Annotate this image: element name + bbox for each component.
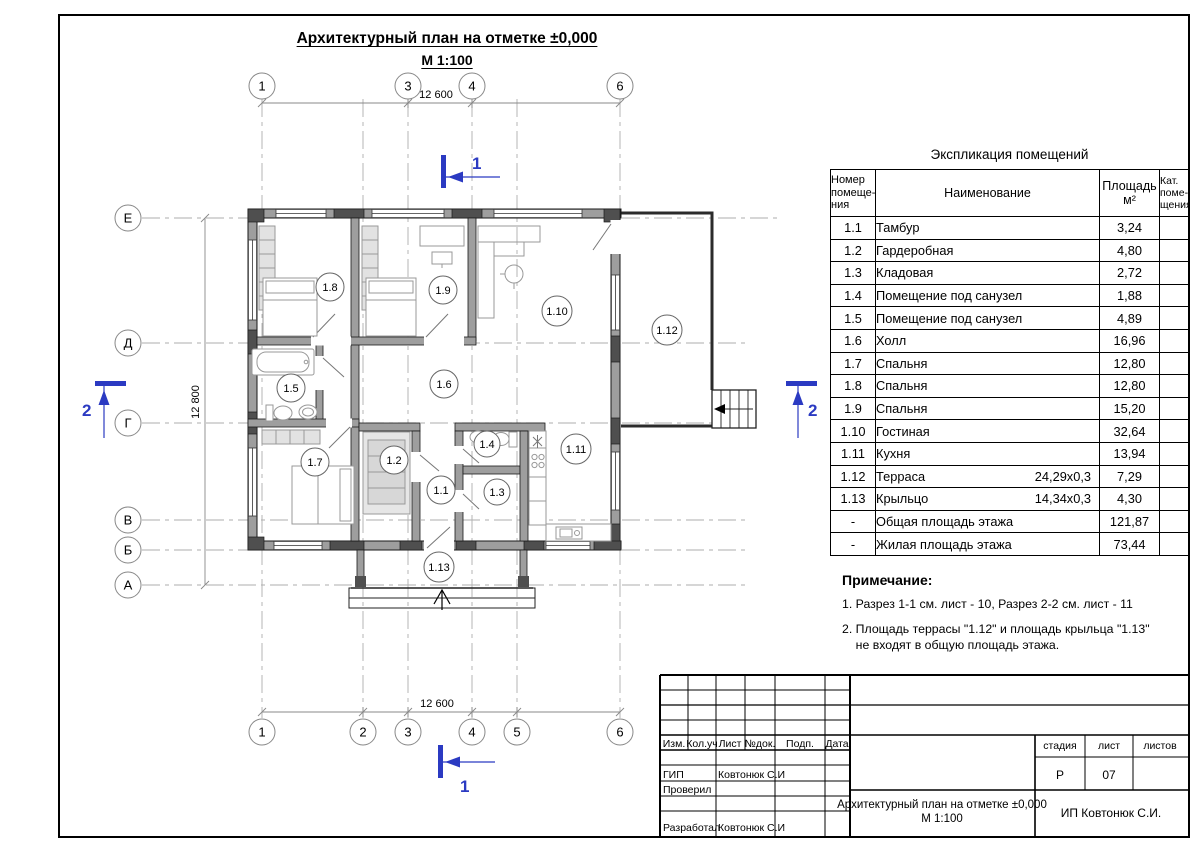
sink-icon bbox=[299, 405, 317, 419]
axis-grid-lines bbox=[142, 99, 780, 718]
room-label: 1.1 bbox=[433, 485, 448, 497]
room-label: 1.12 bbox=[656, 325, 677, 337]
room-name: Спальня bbox=[876, 401, 927, 416]
axis-bubble-bottom: 6 bbox=[607, 719, 633, 745]
room-number-cell: 1.6 bbox=[831, 329, 876, 352]
room-label: 1.5 bbox=[283, 383, 298, 395]
room-number-cell: 1.7 bbox=[831, 352, 876, 375]
stamp-company: ИП Ковтонюк С.И. bbox=[1061, 806, 1162, 820]
axis-bubble-left: Б bbox=[115, 537, 141, 563]
table-row: 1.8 Спальня 12,80 bbox=[831, 375, 1190, 398]
axis-bubble-bottom: 3 bbox=[395, 719, 421, 745]
section-label: 1 bbox=[472, 154, 481, 173]
room-name: Спальня bbox=[876, 356, 927, 371]
room-name: Общая площадь этажа bbox=[876, 514, 1013, 529]
room-bubble-1-4: 1.4 bbox=[474, 431, 500, 457]
table-row: 1.5 Помещение под санузел 4,89 bbox=[831, 307, 1190, 330]
room-label: 1.13 bbox=[428, 562, 449, 574]
room-name-cell: Жилая площадь этажа bbox=[876, 533, 1100, 556]
axis-bubble-left: Е bbox=[115, 205, 141, 231]
room-name-cell: Гардеробная bbox=[876, 239, 1100, 262]
axis-label: Б bbox=[124, 543, 133, 558]
room-name-cell: Крыльцо14,34x0,3 bbox=[876, 488, 1100, 511]
bed-icon bbox=[366, 278, 416, 336]
bed-icon bbox=[292, 466, 354, 524]
table-row: 1.1 Тамбур 3,24 bbox=[831, 217, 1190, 240]
room-label: 1.3 bbox=[489, 487, 504, 499]
notes-block: Примечание: 1. Разрез 1-1 см. лист - 10,… bbox=[842, 572, 1182, 654]
room-category-cell bbox=[1160, 352, 1190, 375]
room-name-cell: Помещение под санузел bbox=[876, 307, 1100, 330]
col-header-name: Наименование bbox=[876, 170, 1100, 217]
bathtub-icon bbox=[252, 349, 314, 375]
room-schedule-title: Экспликация помещений bbox=[830, 147, 1189, 169]
room-area-cell: 1,88 bbox=[1100, 284, 1160, 307]
room-name: Жилая площадь этажа bbox=[876, 537, 1012, 552]
stamp-stage-label: стадия bbox=[1043, 740, 1076, 752]
room-category-cell bbox=[1160, 239, 1190, 262]
room-area-cell: 2,72 bbox=[1100, 262, 1160, 285]
room-area-cell: 7,29 bbox=[1100, 465, 1160, 488]
bed-icon bbox=[263, 278, 317, 336]
axis-label: В bbox=[124, 513, 133, 528]
stamp-name: Ковтонюк С.И bbox=[718, 769, 785, 781]
axis-label: 3 bbox=[404, 79, 411, 94]
dim-value-top: 12 600 bbox=[419, 89, 453, 101]
stamp-col-label: №док. bbox=[745, 738, 776, 750]
room-dim: 14,34x0,3 bbox=[1035, 491, 1091, 506]
room-label: 1.7 bbox=[307, 457, 322, 469]
axis-label: 2 bbox=[359, 725, 366, 740]
table-row: 1.6 Холл 16,96 bbox=[831, 329, 1190, 352]
axis-label: 4 bbox=[468, 79, 475, 94]
room-area-cell: 3,24 bbox=[1100, 217, 1160, 240]
axis-bubble-left: Г bbox=[115, 410, 141, 436]
room-area-cell: 4,80 bbox=[1100, 239, 1160, 262]
room-number-cell: 1.12 bbox=[831, 465, 876, 488]
room-bubble-1-10: 1.10 bbox=[542, 296, 572, 326]
room-label: 1.6 bbox=[436, 379, 451, 391]
table-row: 1.13 Крыльцо14,34x0,3 4,30 bbox=[831, 488, 1190, 511]
room-name: Гардеробная bbox=[876, 243, 953, 258]
room-category-cell bbox=[1160, 442, 1190, 465]
room-label: 1.8 bbox=[322, 282, 337, 294]
table-row: - Жилая площадь этажа 73,44 bbox=[831, 533, 1190, 556]
room-number-cell: 1.3 bbox=[831, 262, 876, 285]
axis-bubble-bottom: 1 bbox=[249, 719, 275, 745]
room-area-cell: 15,20 bbox=[1100, 397, 1160, 420]
room-category-cell bbox=[1160, 533, 1190, 556]
room-number-cell: 1.10 bbox=[831, 420, 876, 443]
room-name: Помещение под санузел bbox=[876, 288, 1022, 303]
room-schedule: Экспликация помещений Номер помеще- ния … bbox=[830, 147, 1189, 556]
section-label: 2 bbox=[82, 401, 91, 420]
room-name-cell: Гостиная bbox=[876, 420, 1100, 443]
room-name: Крыльцо bbox=[876, 491, 928, 506]
kitchen-sink-icon bbox=[556, 527, 582, 539]
axis-label: Е bbox=[124, 211, 133, 226]
axis-bubble-left: А bbox=[115, 572, 141, 598]
room-dim: 24,29x0,3 bbox=[1035, 469, 1091, 484]
room-area-cell: 73,44 bbox=[1100, 533, 1160, 556]
armchair-icon bbox=[500, 265, 523, 289]
stamp-col-label: Лист bbox=[719, 738, 742, 750]
room-bubble-1-12: 1.12 bbox=[652, 315, 682, 345]
room-number-cell: 1.2 bbox=[831, 239, 876, 262]
section-marker-1-bottom: 1 bbox=[438, 745, 495, 796]
room-area-cell: 12,80 bbox=[1100, 352, 1160, 375]
room-label: 1.10 bbox=[546, 306, 567, 318]
room-schedule-table: Номер помеще- ния Наименование Площадь м… bbox=[830, 169, 1190, 556]
stamp-sheet-label: лист bbox=[1098, 740, 1120, 752]
room-area-cell: 13,94 bbox=[1100, 442, 1160, 465]
room-bubble-1-3: 1.3 bbox=[484, 479, 510, 505]
terrace-stairs-icon bbox=[712, 390, 756, 428]
room-number-cell: 1.5 bbox=[831, 307, 876, 330]
notes-list: 1. Разрез 1-1 см. лист - 10, Разрез 2-2 … bbox=[842, 597, 1182, 654]
room-label: 1.11 bbox=[566, 444, 587, 456]
room-name: Гостиная bbox=[876, 424, 930, 439]
room-name-cell: Спальня bbox=[876, 397, 1100, 420]
room-bubble-1-9: 1.9 bbox=[429, 276, 457, 304]
shelves-icon bbox=[363, 432, 410, 514]
stamp-doc-title: Архитектурный план на отметке ±0,000 bbox=[837, 799, 1047, 811]
stamp-col-label: Дата bbox=[825, 738, 848, 750]
stamp-role: ГИП bbox=[663, 769, 684, 781]
notes-heading: Примечание: bbox=[842, 572, 1182, 588]
axis-label: 5 bbox=[513, 725, 520, 740]
axis-bubble-top: 6 bbox=[607, 73, 633, 99]
axis-bubble-bottom: 4 bbox=[459, 719, 485, 745]
room-name: Спальня bbox=[876, 378, 927, 393]
stamp-col-label: Изм. bbox=[663, 738, 686, 750]
table-row: 1.11 Кухня 13,94 bbox=[831, 442, 1190, 465]
room-number-cell: 1.8 bbox=[831, 375, 876, 398]
room-bubble-1-13: 1.13 bbox=[424, 552, 454, 582]
section-marker-2-right: 2 bbox=[786, 381, 817, 438]
axis-label: 1 bbox=[258, 79, 265, 94]
axis-bubble-top: 4 bbox=[459, 73, 485, 99]
room-name-cell: Кухня bbox=[876, 442, 1100, 465]
axis-label: 1 bbox=[258, 725, 265, 740]
room-area-cell: 16,96 bbox=[1100, 329, 1160, 352]
room-name-cell: Терраса24,29x0,3 bbox=[876, 465, 1100, 488]
room-category-cell bbox=[1160, 329, 1190, 352]
dim-value-left: 12 800 bbox=[190, 385, 202, 419]
axis-bubble-top: 3 bbox=[395, 73, 421, 99]
dim-value-bottom: 12 600 bbox=[420, 698, 454, 710]
stamp-sheet-value: 07 bbox=[1102, 768, 1116, 782]
room-label: 1.9 bbox=[435, 285, 450, 297]
room-number-cell: 1.1 bbox=[831, 217, 876, 240]
room-number-cell: - bbox=[831, 510, 876, 533]
dimension-bottom: 12 600 bbox=[258, 698, 624, 717]
room-label: 1.2 bbox=[386, 455, 401, 467]
stamp-name: Ковтонюк С.И bbox=[718, 822, 785, 834]
room-bubble-1-5: 1.5 bbox=[277, 374, 305, 402]
table-row: 1.7 Спальня 12,80 bbox=[831, 352, 1190, 375]
title-stamp-text: Изм. Кол.уч Лист №док. Подп. Дата ГИП Ко… bbox=[663, 738, 1177, 834]
table-row: 1.9 Спальня 15,20 bbox=[831, 397, 1190, 420]
toilet-icon bbox=[266, 405, 292, 421]
terrace-outline bbox=[621, 213, 756, 428]
room-name: Кухня bbox=[876, 446, 910, 461]
room-number-cell: 1.13 bbox=[831, 488, 876, 511]
note-item: 2. Площадь террасы "1.12" и площадь крыл… bbox=[842, 622, 1182, 654]
room-name: Холл bbox=[876, 333, 906, 348]
stamp-stage-value: Р bbox=[1056, 768, 1064, 782]
room-category-cell bbox=[1160, 397, 1190, 420]
section-label: 1 bbox=[460, 777, 469, 796]
room-name: Кладовая bbox=[876, 265, 933, 280]
room-category-cell bbox=[1160, 262, 1190, 285]
room-category-cell bbox=[1160, 284, 1190, 307]
axis-label: 6 bbox=[616, 79, 623, 94]
room-area-cell: 32,64 bbox=[1100, 420, 1160, 443]
col-header-number: Номер помеще- ния bbox=[831, 170, 876, 217]
room-name: Терраса bbox=[876, 469, 925, 484]
room-name-cell: Помещение под санузел bbox=[876, 284, 1100, 307]
dimension-left: 12 800 bbox=[190, 214, 209, 589]
axis-label: Д bbox=[124, 336, 133, 351]
room-area-cell: 4,30 bbox=[1100, 488, 1160, 511]
room-category-cell bbox=[1160, 420, 1190, 443]
table-row: 1.4 Помещение под санузел 1,88 bbox=[831, 284, 1190, 307]
room-name-cell: Спальня bbox=[876, 352, 1100, 375]
room-category-cell bbox=[1160, 510, 1190, 533]
col-header-category: Кат. поме- щения bbox=[1160, 170, 1190, 217]
room-category-cell bbox=[1160, 217, 1190, 240]
room-name: Помещение под санузел bbox=[876, 311, 1022, 326]
stamp-col-label: Подп. bbox=[786, 738, 814, 750]
room-name-cell: Холл bbox=[876, 329, 1100, 352]
axis-label: А bbox=[124, 578, 133, 593]
room-name-cell: Тамбур bbox=[876, 217, 1100, 240]
stamp-doc-scale: М 1:100 bbox=[921, 813, 963, 825]
table-row: - Общая площадь этажа 121,87 bbox=[831, 510, 1190, 533]
room-area-cell: 121,87 bbox=[1100, 510, 1160, 533]
room-bubble-1-8: 1.8 bbox=[316, 273, 344, 301]
axis-bubble-bottom: 2 bbox=[350, 719, 376, 745]
section-marker-1-top: 1 bbox=[441, 154, 500, 188]
room-area-cell: 12,80 bbox=[1100, 375, 1160, 398]
room-name-cell: Кладовая bbox=[876, 262, 1100, 285]
room-bubble-1-7: 1.7 bbox=[301, 448, 329, 476]
wardrobe-icon bbox=[262, 430, 320, 444]
room-bubble-1-1: 1.1 bbox=[427, 476, 455, 504]
room-bubble-1-11: 1.11 bbox=[561, 434, 591, 464]
room-number-cell: - bbox=[831, 533, 876, 556]
room-number-cell: 1.9 bbox=[831, 397, 876, 420]
room-category-cell bbox=[1160, 488, 1190, 511]
stamp-sheets-label: листов bbox=[1143, 740, 1177, 752]
stamp-role: Проверил bbox=[663, 784, 711, 796]
room-schedule-body: 1.1 Тамбур 3,24 1.2 Гардеробная 4,80 bbox=[831, 217, 1190, 556]
axis-label: 6 bbox=[616, 725, 623, 740]
axis-label: 4 bbox=[468, 725, 475, 740]
table-row: 1.3 Кладовая 2,72 bbox=[831, 262, 1190, 285]
room-number-cell: 1.11 bbox=[831, 442, 876, 465]
room-name: Тамбур bbox=[876, 220, 919, 235]
axis-bubble-left: Д bbox=[115, 330, 141, 356]
table-row: 1.2 Гардеробная 4,80 bbox=[831, 239, 1190, 262]
note-item: 1. Разрез 1-1 см. лист - 10, Разрез 2-2 … bbox=[842, 597, 1182, 613]
room-area-cell: 4,89 bbox=[1100, 307, 1160, 330]
axis-label: 3 bbox=[404, 725, 411, 740]
desk-icon bbox=[420, 226, 464, 268]
room-bubble-1-6: 1.6 bbox=[430, 370, 458, 398]
entry-arrow-icon bbox=[434, 590, 450, 610]
table-row: 1.12 Терраса24,29x0,3 7,29 bbox=[831, 465, 1190, 488]
room-bubble-1-2: 1.2 bbox=[380, 446, 408, 474]
room-name-cell: Спальня bbox=[876, 375, 1100, 398]
axis-bubble-bottom: 5 bbox=[504, 719, 530, 745]
table-header-row: Номер помеще- ния Наименование Площадь м… bbox=[831, 170, 1190, 217]
col-header-area: Площадь м² bbox=[1100, 170, 1160, 217]
drawing-sheet: Архитектурный план на отметке ±0,000 М 1… bbox=[0, 0, 1200, 848]
axis-label: Г bbox=[124, 416, 131, 431]
dimension-top: 12 600 bbox=[258, 89, 624, 108]
room-category-cell bbox=[1160, 307, 1190, 330]
sofa-icon bbox=[478, 226, 540, 318]
room-category-cell bbox=[1160, 465, 1190, 488]
axis-bubble-top: 1 bbox=[249, 73, 275, 99]
axis-bubble-left: В bbox=[115, 507, 141, 533]
room-category-cell bbox=[1160, 375, 1190, 398]
room-name-cell: Общая площадь этажа bbox=[876, 510, 1100, 533]
table-row: 1.10 Гостиная 32,64 bbox=[831, 420, 1190, 443]
room-number-cell: 1.4 bbox=[831, 284, 876, 307]
stamp-role: Разработал bbox=[663, 822, 720, 834]
section-label: 2 bbox=[808, 401, 817, 420]
stamp-col-label: Кол.уч bbox=[686, 738, 718, 750]
room-label: 1.4 bbox=[479, 439, 494, 451]
